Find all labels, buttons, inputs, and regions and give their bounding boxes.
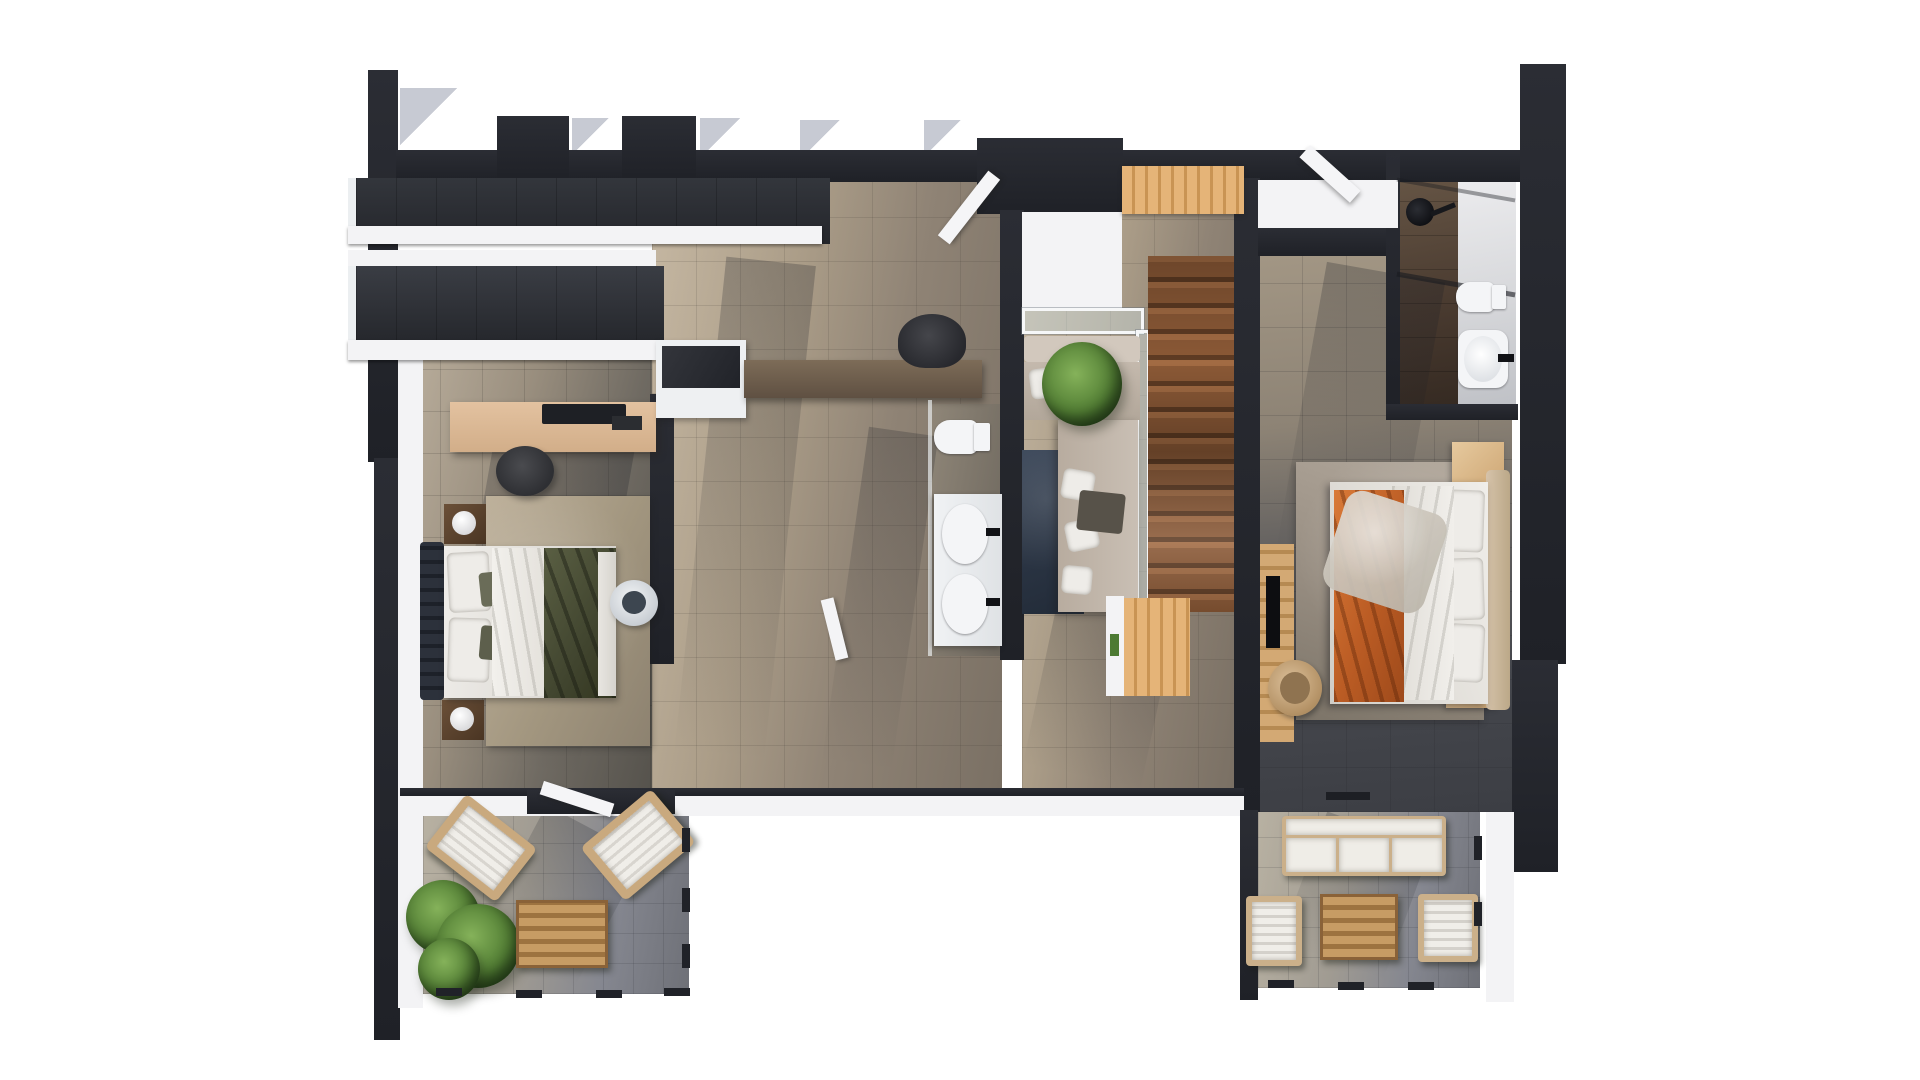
dresser-top: [662, 346, 740, 388]
tap: [986, 528, 1000, 536]
roof-shadow: [800, 120, 856, 150]
wall-parapet-a: [497, 116, 569, 182]
railing-post: [664, 988, 690, 996]
roof-shadow: [572, 118, 620, 150]
wardrobe-shelf-upper-front: [348, 226, 822, 244]
wood-runner-stair-bottom: [1124, 598, 1190, 696]
office-chair: [898, 314, 966, 368]
toilet-main: [934, 420, 978, 454]
wall-stair-block: [977, 138, 1123, 214]
hall-bedroom-right: [1258, 180, 1398, 228]
roof-shadow: [700, 118, 756, 150]
outdoor-armchair-cushion: [1252, 902, 1296, 960]
bed-left-sheet-edge: [598, 552, 616, 696]
outdoor-armchair-cushion: [1424, 900, 1472, 956]
roof-shadow: [924, 120, 974, 150]
outdoor-sofa-cushion: [1286, 838, 1336, 872]
bench-plant: [1110, 634, 1119, 656]
landing-floor-top: [1022, 212, 1122, 310]
coffee-table-terrace-right: [1320, 894, 1398, 960]
outdoor-sofa-back: [1286, 819, 1442, 835]
basin: [942, 504, 988, 564]
railing-post: [1474, 836, 1482, 860]
washbasin-inner: [1464, 336, 1502, 382]
bed-right-headboard: [1486, 470, 1510, 710]
outdoor-armchair: [1418, 894, 1478, 962]
outdoor-sofa: [1282, 816, 1446, 876]
wall-stairhall-right: [1234, 178, 1260, 812]
outdoor-sofa-cushion: [1339, 838, 1389, 872]
floor-plan-scene: [0, 0, 1920, 1080]
tap: [1498, 354, 1514, 362]
railing-post: [596, 990, 622, 998]
sun-hat-band: [622, 591, 646, 614]
rattan-chair-seat: [1280, 672, 1310, 704]
wall-right: [1520, 64, 1566, 664]
toilet-ensuite: [1456, 282, 1494, 312]
railing-post: [682, 944, 690, 968]
wall-bedroom-right-top: [1258, 228, 1398, 256]
basin: [942, 574, 988, 634]
staircase: [1148, 256, 1234, 612]
railing-post: [516, 990, 542, 998]
balustrade-horizontal: [1022, 308, 1144, 334]
railing-post: [1338, 982, 1364, 990]
tv: [1266, 576, 1280, 648]
landing-mat: [1122, 166, 1244, 214]
desk-accessory: [612, 416, 642, 430]
wall-ensuite-bottom: [1386, 404, 1518, 420]
wall-right-lower: [1512, 660, 1558, 872]
tap: [986, 598, 1000, 606]
railing-post: [1408, 982, 1434, 990]
bed-left-headboard: [420, 542, 444, 700]
toilet-ensuite-tank: [1492, 285, 1506, 309]
sliding-door-handle: [1326, 792, 1370, 800]
railing-post: [436, 988, 462, 996]
railing-post: [1474, 902, 1482, 926]
outdoor-sofa-cushion: [1392, 838, 1442, 872]
shower-glass: [928, 400, 932, 656]
wardrobe-shelf-lower-front: [348, 340, 656, 360]
railing-post: [682, 888, 690, 912]
sofa-throw: [1076, 490, 1126, 535]
wall-parapet-b: [622, 116, 696, 182]
lamp: [450, 707, 474, 731]
potted-palm-lounge: [1042, 342, 1122, 426]
outdoor-armchair: [1246, 896, 1302, 966]
railing-post: [682, 828, 690, 852]
bed-left-duvet: [492, 548, 552, 696]
wardrobe-shelf-mid-top: [348, 250, 656, 266]
wall-right-terrace-face: [1486, 812, 1514, 1002]
wall-left-lower: [374, 458, 400, 1040]
wall-stairhall-left: [1000, 210, 1024, 660]
wardrobe-shelf-lower: [348, 266, 664, 340]
desk-stool: [496, 446, 554, 496]
coffee-table-terrace-left: [516, 900, 608, 968]
railing-post: [1268, 980, 1294, 988]
roof-shadow: [400, 88, 462, 150]
lamp: [452, 511, 476, 535]
toilet-main-tank: [974, 423, 990, 451]
sofa-pillow: [1061, 565, 1093, 596]
